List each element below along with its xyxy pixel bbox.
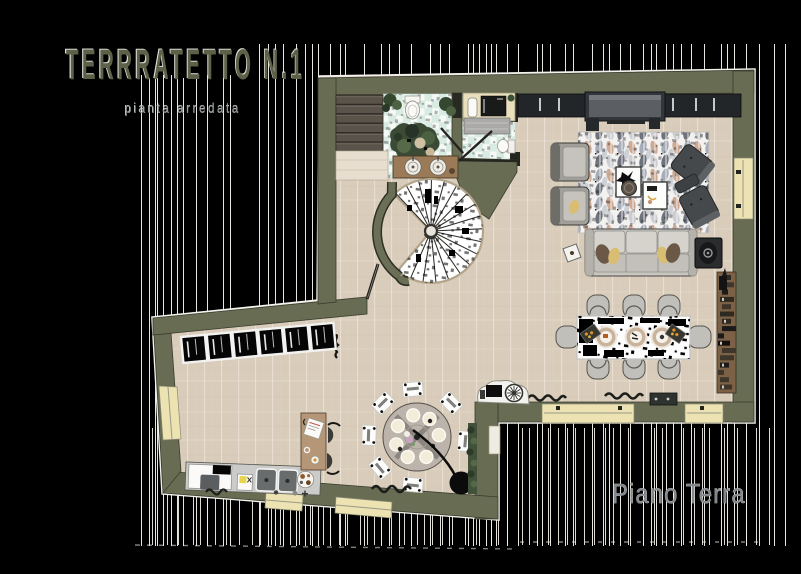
svg-text:Piano Terra: Piano Terra: [612, 477, 745, 509]
svg-text:pianta arredata: pianta arredata: [125, 100, 239, 116]
